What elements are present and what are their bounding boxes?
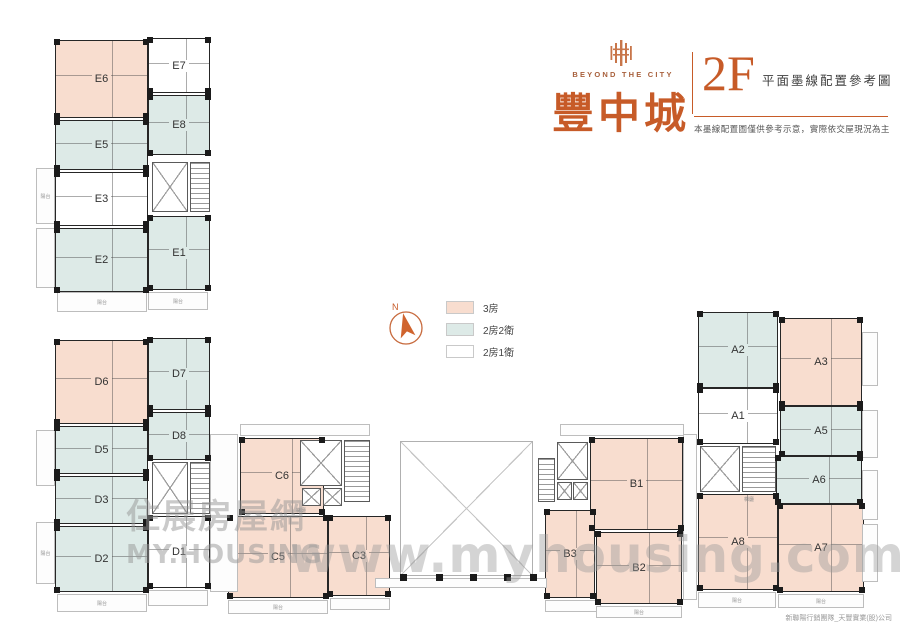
unit-B2: B2 — [596, 532, 682, 604]
unit-A2: A2 — [698, 312, 778, 388]
column-marker — [327, 591, 333, 597]
unit-E6: E6 — [55, 40, 148, 118]
floor-plan-page: BEYOND THE CITY 豐中城 2F 平面墨線配置參考圖 本墨線配置圖僅… — [0, 0, 900, 634]
unit-label: B2 — [629, 562, 648, 574]
balcony-outline — [862, 524, 878, 582]
balcony-label: 陽台 — [816, 598, 826, 605]
column-marker — [775, 455, 781, 461]
balcony-outline — [683, 434, 697, 600]
unit-label: C5 — [268, 551, 288, 563]
column-marker — [205, 94, 211, 100]
column-marker — [470, 574, 477, 581]
unit-label: B3 — [560, 548, 579, 560]
unit-label: E1 — [169, 247, 188, 259]
balcony-outline — [862, 410, 878, 458]
stairwell — [742, 446, 776, 492]
balcony-label: 陽台 — [40, 193, 50, 200]
unit-D6: D6 — [55, 340, 148, 424]
unit-label: E6 — [92, 73, 111, 85]
unit-label: D8 — [169, 430, 189, 442]
column-marker — [697, 493, 703, 499]
balcony-label: 陽台 — [97, 299, 107, 306]
unit-A1: A1 — [698, 388, 778, 444]
column-marker — [697, 439, 703, 445]
column-marker — [677, 599, 683, 605]
unit-label: E8 — [169, 119, 188, 131]
column-marker — [400, 574, 407, 581]
column-marker — [859, 503, 865, 509]
unit-label: D6 — [91, 376, 111, 388]
unit-label: A5 — [811, 425, 830, 437]
balcony-label: 陽台 — [634, 609, 644, 616]
unit-B3: B3 — [545, 510, 595, 598]
column-marker — [385, 515, 391, 521]
elevator-core — [700, 446, 740, 492]
unit-A7: A7 — [778, 504, 864, 592]
open-courtyard — [400, 441, 533, 576]
column-marker — [147, 150, 153, 156]
column-marker — [54, 475, 60, 481]
column-marker — [319, 437, 325, 443]
column-marker — [777, 503, 783, 509]
column-marker — [143, 171, 149, 177]
balcony-outline — [330, 598, 390, 610]
unit-label: E2 — [92, 254, 111, 266]
column-marker — [205, 455, 211, 461]
unit-label: A3 — [811, 356, 830, 368]
column-marker — [143, 425, 149, 431]
balcony-outline — [36, 228, 55, 288]
column-marker — [143, 475, 149, 481]
column-marker — [205, 337, 211, 343]
hall-label: 梯廳 — [296, 507, 306, 514]
unit-label: B1 — [627, 478, 646, 490]
column-marker — [777, 587, 783, 593]
column-marker — [239, 509, 245, 515]
column-marker — [54, 171, 60, 177]
column-marker — [779, 317, 785, 323]
column-marker — [595, 599, 601, 605]
column-marker — [147, 337, 153, 343]
balcony-outline: 陽台 — [57, 292, 147, 312]
stairwell — [538, 458, 555, 502]
unit-label: D5 — [91, 444, 111, 456]
column-marker — [147, 455, 153, 461]
column-marker — [436, 574, 443, 581]
column-marker — [857, 405, 863, 411]
balcony-label: 陽台 — [40, 550, 50, 557]
unit-D7: D7 — [148, 338, 210, 410]
column-marker — [54, 119, 60, 125]
column-marker — [779, 405, 785, 411]
column-marker — [54, 39, 60, 45]
balcony-outline: 陽台 — [778, 594, 864, 608]
column-marker — [530, 574, 537, 581]
column-marker — [54, 227, 60, 233]
column-marker — [697, 585, 703, 591]
column-marker — [678, 437, 684, 443]
unit-label: D7 — [169, 368, 189, 380]
column-marker — [205, 150, 211, 156]
balcony-outline: 陽台 — [36, 168, 55, 224]
unit-E8: E8 — [148, 95, 210, 155]
column-marker — [54, 287, 60, 293]
balcony-label: 陽台 — [273, 604, 283, 611]
unit-E1: E1 — [148, 216, 210, 290]
balcony-label: 陽台 — [97, 600, 107, 607]
column-marker — [205, 411, 211, 417]
balcony-outline — [240, 424, 370, 436]
balcony-outline — [862, 470, 878, 520]
column-marker — [147, 583, 153, 589]
column-marker — [589, 437, 595, 443]
column-marker — [697, 387, 703, 393]
column-marker — [54, 339, 60, 345]
elevator-core — [302, 488, 321, 506]
unit-A6: A6 — [776, 456, 862, 504]
unit-C5: C5 — [228, 516, 328, 598]
column-marker — [227, 593, 233, 599]
column-marker — [147, 215, 153, 221]
balcony-outline — [210, 434, 238, 592]
column-marker — [54, 425, 60, 431]
column-marker — [595, 531, 601, 537]
column-marker — [147, 411, 153, 417]
column-marker — [147, 94, 153, 100]
balcony-outline: 陽台 — [36, 522, 55, 584]
column-marker — [205, 583, 211, 589]
balcony-label: 陽台 — [732, 597, 742, 604]
marketing-credit: 新聯陽行銷團隊_天豐實業(股)公司 — [785, 613, 892, 623]
balcony-outline: 陽台 — [148, 292, 208, 310]
column-marker — [857, 455, 863, 461]
elevator-core — [152, 162, 188, 212]
balcony-outline: 陽台 — [57, 594, 147, 612]
balcony-outline — [862, 332, 878, 386]
column-marker — [205, 515, 211, 521]
unit-label: D3 — [91, 494, 111, 506]
column-marker — [147, 515, 153, 521]
unit-A5: A5 — [780, 406, 862, 456]
hall-label: 梯廳 — [744, 496, 754, 503]
column-marker — [143, 525, 149, 531]
column-marker — [205, 215, 211, 221]
unit-B1: B1 — [590, 438, 683, 530]
unit-label: E5 — [92, 139, 111, 151]
unit-E3: E3 — [55, 172, 148, 226]
column-marker — [385, 591, 391, 597]
column-marker — [147, 37, 153, 43]
column-marker — [773, 387, 779, 393]
column-marker — [143, 227, 149, 233]
column-marker — [239, 437, 245, 443]
unit-label: E3 — [92, 193, 111, 205]
unit-label: C6 — [272, 470, 292, 482]
column-marker — [773, 439, 779, 445]
elevator-core — [557, 442, 588, 480]
column-marker — [859, 587, 865, 593]
unit-D1: D1 — [148, 516, 210, 588]
column-marker — [327, 515, 333, 521]
unit-label: A6 — [809, 474, 828, 486]
balcony-outline — [545, 600, 601, 612]
unit-label: D2 — [91, 553, 111, 565]
unit-E5: E5 — [55, 120, 148, 170]
column-marker — [143, 287, 149, 293]
unit-label: A2 — [728, 344, 747, 356]
column-marker — [857, 317, 863, 323]
balcony-outline — [560, 424, 684, 436]
balcony-outline: 陽台 — [228, 600, 328, 614]
column-marker — [773, 493, 779, 499]
column-marker — [544, 593, 550, 599]
unit-label: E7 — [169, 60, 188, 72]
column-marker — [205, 37, 211, 43]
unit-A3: A3 — [780, 318, 862, 406]
unit-D3: D3 — [55, 476, 148, 524]
column-marker — [227, 515, 233, 521]
column-marker — [544, 509, 550, 515]
balcony-outline — [36, 430, 55, 486]
elevator-core — [323, 488, 342, 506]
unit-label: D1 — [169, 546, 189, 558]
balcony-outline: 陽台 — [698, 592, 776, 608]
unit-label: A1 — [728, 410, 747, 422]
unit-D5: D5 — [55, 426, 148, 474]
unit-D2: D2 — [55, 526, 148, 592]
elevator-core — [300, 440, 342, 486]
column-marker — [590, 509, 596, 515]
unit-D8: D8 — [148, 412, 210, 460]
unit-label: A8 — [728, 536, 747, 548]
unit-A8: A8 — [698, 494, 778, 590]
column-marker — [504, 574, 511, 581]
stairwell — [190, 162, 210, 212]
unit-label: A7 — [811, 542, 830, 554]
elevator-core — [152, 462, 188, 514]
column-marker — [205, 285, 211, 291]
column-marker — [54, 525, 60, 531]
column-marker — [697, 311, 703, 317]
balcony-outline — [148, 590, 208, 606]
column-marker — [677, 531, 683, 537]
unit-E2: E2 — [55, 228, 148, 292]
elevator-core — [557, 482, 572, 500]
elevator-core — [573, 482, 588, 500]
balcony-label: 陽台 — [173, 298, 183, 305]
balcony-outline: 陽台 — [596, 606, 682, 618]
column-marker — [143, 119, 149, 125]
floor-plan: E6E7E8E5E3E1E2D6D7D5D8D3D2D1C6C5C3B1B3B2… — [0, 0, 900, 634]
unit-label: C3 — [349, 550, 369, 562]
column-marker — [54, 587, 60, 593]
unit-E7: E7 — [148, 38, 210, 93]
stairwell — [344, 440, 370, 502]
stairwell — [190, 462, 210, 514]
